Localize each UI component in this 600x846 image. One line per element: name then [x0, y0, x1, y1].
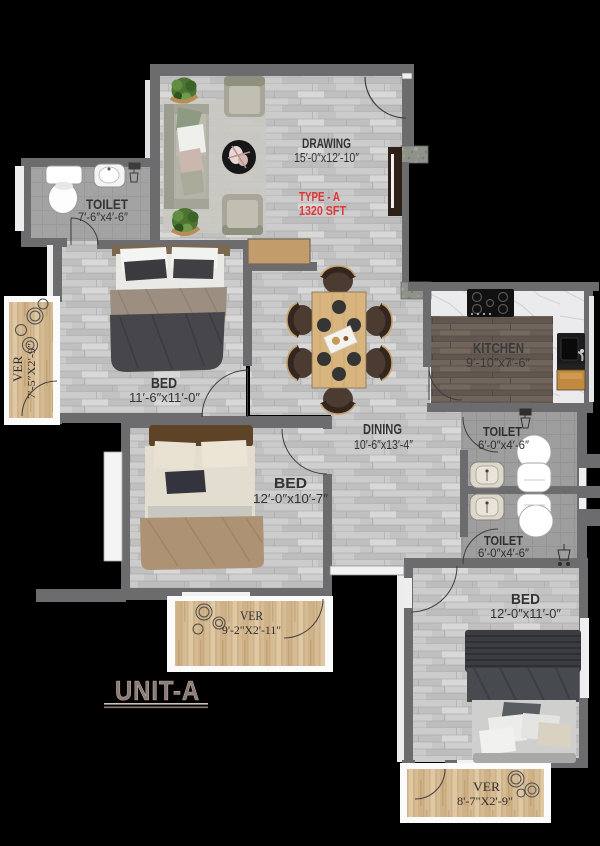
svg-text:DINING: DINING [363, 421, 402, 438]
svg-text:TOILET: TOILET [86, 196, 128, 212]
svg-text:12′-0″x11′-0″: 12′-0″x11′-0″ [490, 607, 562, 621]
svg-text:VER: VER [240, 608, 263, 623]
svg-text:15′-0″x12′-10″: 15′-0″x12′-10″ [294, 151, 359, 165]
svg-text:KITCHEN: KITCHEN [473, 340, 524, 357]
svg-text:7′-5″X2′-9″: 7′-5″X2′-9″ [26, 343, 38, 399]
svg-text:BED: BED [274, 475, 307, 492]
svg-text:UNIT-A: UNIT-A [115, 675, 200, 706]
svg-text:12′-0″x10′-7″: 12′-0″x10′-7″ [253, 492, 329, 506]
svg-text:10′-6″x13′-4″: 10′-6″x13′-4″ [354, 438, 413, 452]
svg-text:BED: BED [151, 375, 177, 392]
svg-text:TOILET: TOILET [484, 533, 523, 548]
svg-text:6′-0″x4′-6″: 6′-0″x4′-6″ [478, 548, 529, 560]
svg-text:BED: BED [511, 591, 540, 608]
svg-text:1320 SFT: 1320 SFT [299, 203, 346, 218]
svg-text:VER: VER [473, 779, 500, 794]
svg-text:TOILET: TOILET [483, 424, 522, 439]
svg-text:7′-6″x4′-6″: 7′-6″x4′-6″ [78, 212, 128, 224]
svg-text:TYPE - A: TYPE - A [299, 189, 340, 204]
svg-text:8'-7"X2'-9": 8'-7"X2'-9" [457, 794, 513, 808]
svg-text:6′-0″x4′-6″: 6′-0″x4′-6″ [478, 440, 529, 452]
svg-text:11′-6″x11′-0″: 11′-6″x11′-0″ [129, 391, 201, 405]
svg-text:9′-10″x7′-6″: 9′-10″x7′-6″ [466, 356, 531, 370]
svg-text:9'-2"X2'-11": 9'-2"X2'-11" [222, 623, 281, 637]
svg-text:VER: VER [10, 356, 25, 382]
svg-text:DRAWING: DRAWING [302, 136, 351, 151]
